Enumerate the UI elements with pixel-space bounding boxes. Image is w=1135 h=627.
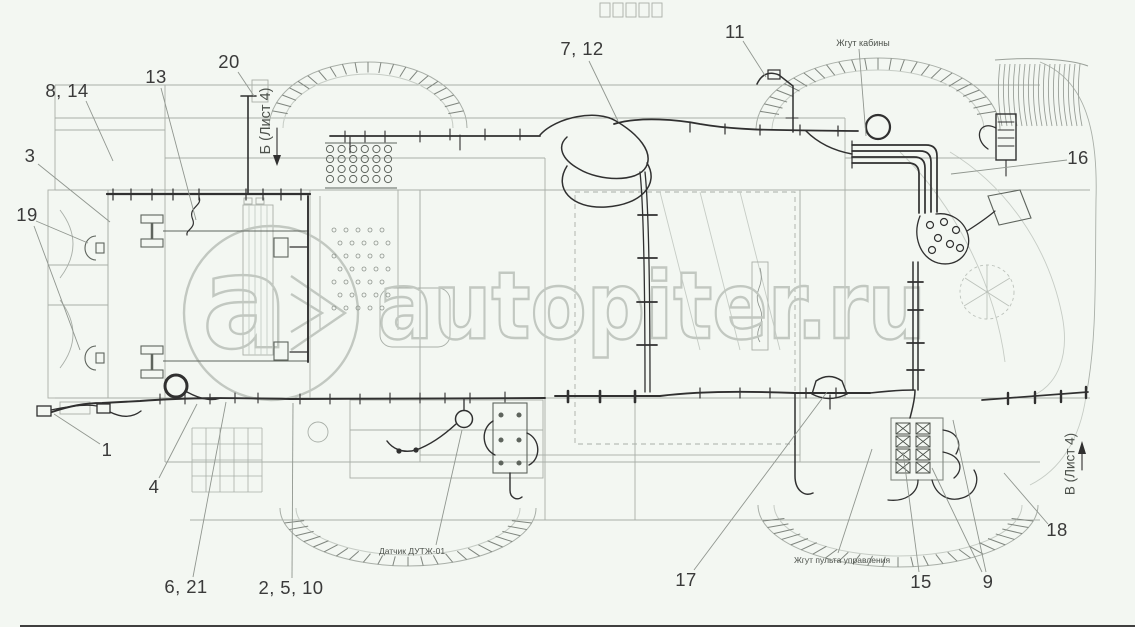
diagram-label-2: Жгут пульта управления (794, 555, 890, 565)
callout-2-5-10: 2, 5, 10 (259, 577, 324, 599)
diagram-stage: a autopiter.ru (0, 0, 1135, 627)
callout-11: 11 (725, 21, 745, 43)
callout-13: 13 (145, 66, 166, 88)
callout-20: 20 (218, 51, 239, 73)
callout-6-21: 6, 21 (164, 576, 207, 598)
callout-8-14: 8, 14 (45, 80, 88, 102)
callout-4: 4 (149, 476, 160, 498)
diagram-label-4: В (Лист 4) (1063, 433, 1078, 495)
callout-7-12: 7, 12 (560, 38, 603, 60)
diagram-label-0: Жгут кабины (836, 38, 889, 48)
callout-3: 3 (25, 145, 36, 167)
callout-17: 17 (675, 569, 696, 591)
callout-19: 19 (16, 204, 37, 226)
callout-9: 9 (983, 571, 994, 593)
callout-16: 16 (1067, 147, 1088, 169)
callout-18: 18 (1046, 519, 1067, 541)
callout-annotations: 8, 141320319146, 212, 5, 107, 1211161715… (0, 0, 1135, 627)
callout-15: 15 (910, 571, 931, 593)
diagram-label-3: Б (Лист 4) (258, 88, 274, 155)
diagram-label-1: Датчик ДУТЖ-01 (379, 546, 445, 556)
callout-1: 1 (102, 439, 113, 461)
